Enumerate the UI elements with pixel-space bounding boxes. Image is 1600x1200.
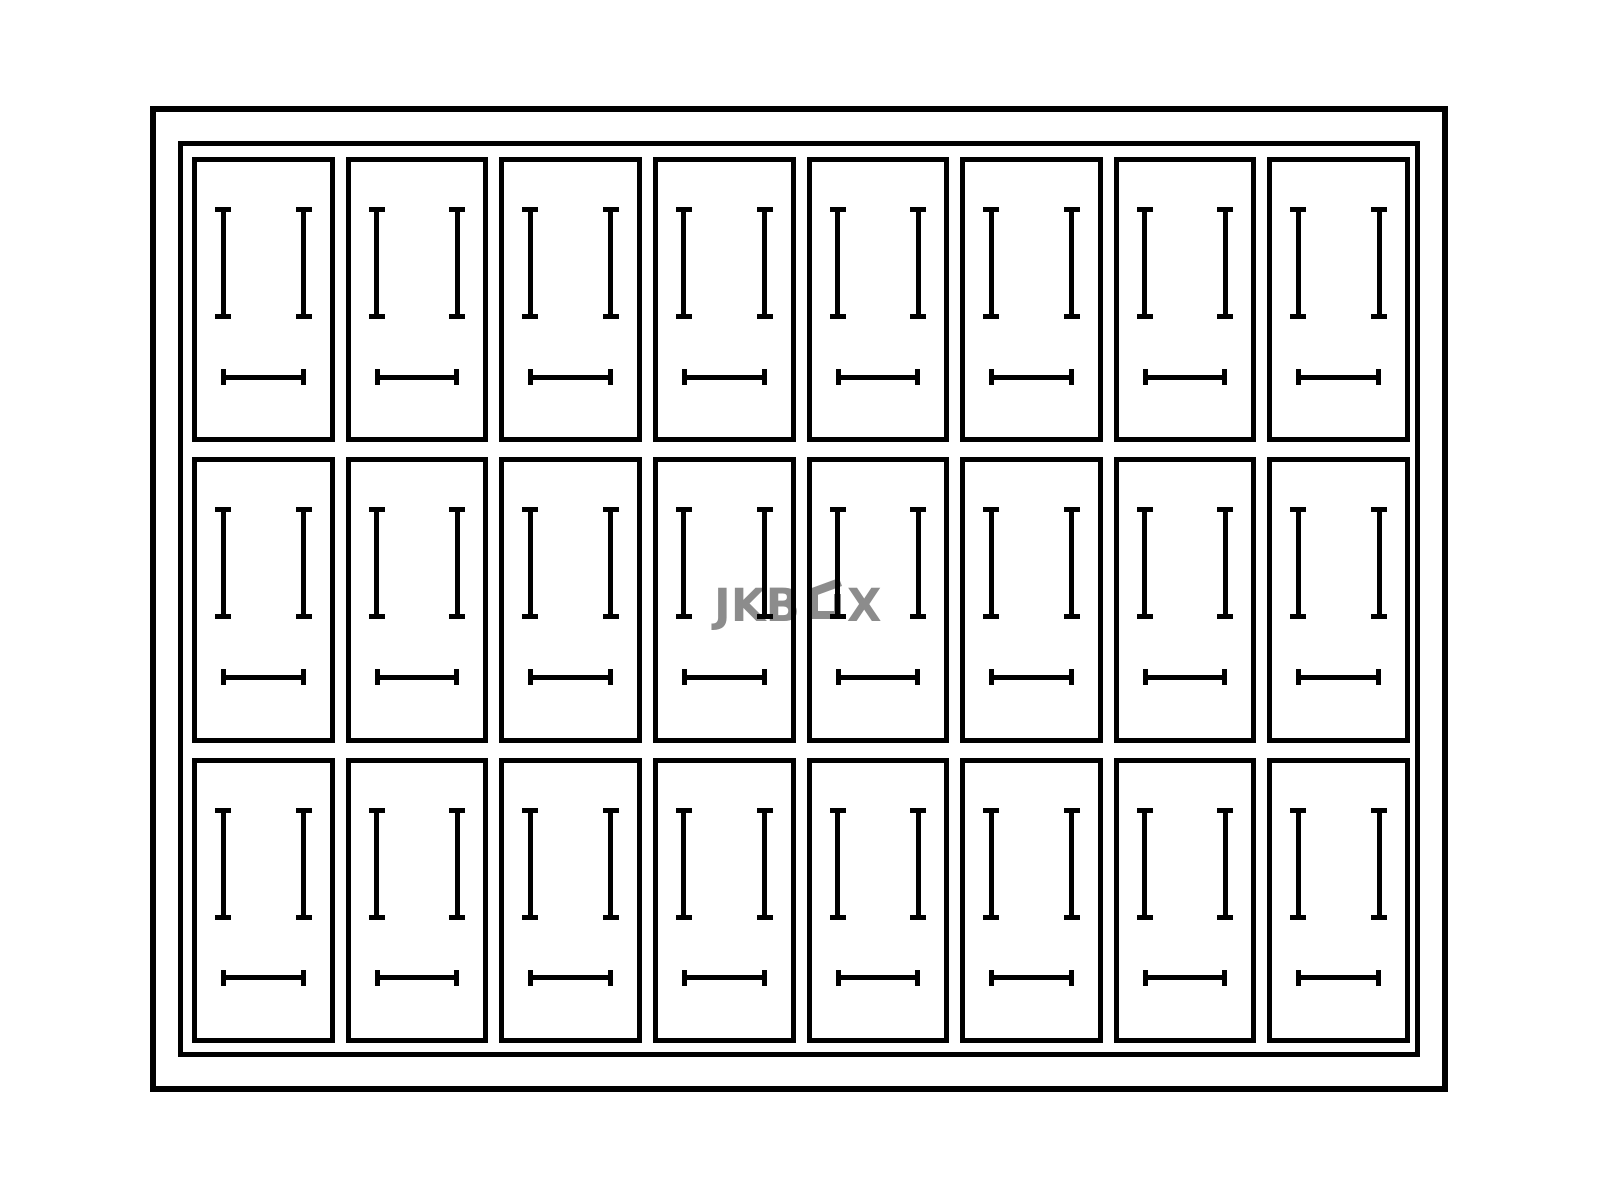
bar-slot-icon bbox=[989, 369, 1074, 385]
pin-slot-left-icon bbox=[215, 808, 231, 920]
bar-slot-icon bbox=[1143, 369, 1228, 385]
pin-slot-right-icon bbox=[603, 808, 619, 920]
compartment bbox=[807, 157, 950, 442]
bar-slot-icon bbox=[221, 970, 306, 986]
bar-slot-icon bbox=[682, 369, 767, 385]
pin-slot-right-icon bbox=[1217, 808, 1233, 920]
bar-slot-icon bbox=[989, 970, 1074, 986]
pin-slot-left-icon bbox=[369, 507, 385, 619]
compartment bbox=[499, 157, 642, 442]
pin-slot-right-icon bbox=[449, 507, 465, 619]
compartment bbox=[807, 457, 950, 742]
pin-slot-left-icon bbox=[1290, 507, 1306, 619]
pin-slot-left-icon bbox=[830, 808, 846, 920]
bar-slot-icon bbox=[1143, 970, 1228, 986]
bar-slot-icon bbox=[1143, 669, 1228, 685]
pin-slot-left-icon bbox=[1290, 808, 1306, 920]
pin-slot-left-icon bbox=[676, 507, 692, 619]
pin-slot-left-icon bbox=[1137, 207, 1153, 319]
tray-diagram: JKB X bbox=[0, 0, 1600, 1200]
compartment bbox=[960, 758, 1103, 1043]
compartment bbox=[653, 157, 796, 442]
compartment bbox=[653, 457, 796, 742]
compartment bbox=[1114, 157, 1257, 442]
pin-slot-left-icon bbox=[1137, 808, 1153, 920]
pin-slot-right-icon bbox=[296, 207, 312, 319]
bar-slot-icon bbox=[375, 369, 460, 385]
pin-slot-right-icon bbox=[449, 808, 465, 920]
pin-slot-left-icon bbox=[522, 808, 538, 920]
pin-slot-right-icon bbox=[1064, 808, 1080, 920]
pin-slot-right-icon bbox=[1371, 808, 1387, 920]
pin-slot-right-icon bbox=[910, 808, 926, 920]
pin-slot-right-icon bbox=[1371, 207, 1387, 319]
pin-slot-right-icon bbox=[757, 507, 773, 619]
compartment bbox=[653, 758, 796, 1043]
pin-slot-left-icon bbox=[1290, 207, 1306, 319]
pin-slot-left-icon bbox=[1137, 507, 1153, 619]
pin-slot-right-icon bbox=[910, 207, 926, 319]
bar-slot-icon bbox=[836, 669, 921, 685]
pin-slot-right-icon bbox=[1371, 507, 1387, 619]
pin-slot-left-icon bbox=[676, 207, 692, 319]
bar-slot-icon bbox=[221, 669, 306, 685]
bar-slot-icon bbox=[682, 669, 767, 685]
pin-slot-right-icon bbox=[296, 808, 312, 920]
bar-slot-icon bbox=[1296, 669, 1381, 685]
compartment bbox=[346, 457, 489, 742]
compartment bbox=[346, 758, 489, 1043]
pin-slot-right-icon bbox=[603, 207, 619, 319]
pin-slot-left-icon bbox=[830, 207, 846, 319]
pin-slot-right-icon bbox=[603, 507, 619, 619]
pin-slot-left-icon bbox=[522, 207, 538, 319]
pin-slot-right-icon bbox=[757, 808, 773, 920]
bar-slot-icon bbox=[836, 970, 921, 986]
bar-slot-icon bbox=[221, 369, 306, 385]
pin-slot-right-icon bbox=[910, 507, 926, 619]
compartment bbox=[499, 457, 642, 742]
pin-slot-right-icon bbox=[1064, 207, 1080, 319]
compartment bbox=[960, 157, 1103, 442]
pin-slot-left-icon bbox=[983, 207, 999, 319]
pin-slot-left-icon bbox=[983, 507, 999, 619]
bar-slot-icon bbox=[375, 669, 460, 685]
pin-slot-left-icon bbox=[676, 808, 692, 920]
compartment bbox=[1114, 457, 1257, 742]
compartment-grid bbox=[192, 157, 1410, 1043]
compartment bbox=[346, 157, 489, 442]
pin-slot-right-icon bbox=[1217, 207, 1233, 319]
bar-slot-icon bbox=[528, 970, 613, 986]
compartment bbox=[1267, 758, 1410, 1043]
bar-slot-icon bbox=[682, 970, 767, 986]
compartment bbox=[960, 457, 1103, 742]
compartment bbox=[1114, 758, 1257, 1043]
bar-slot-icon bbox=[1296, 369, 1381, 385]
compartment bbox=[499, 758, 642, 1043]
pin-slot-right-icon bbox=[1217, 507, 1233, 619]
pin-slot-right-icon bbox=[1064, 507, 1080, 619]
pin-slot-right-icon bbox=[296, 507, 312, 619]
pin-slot-left-icon bbox=[983, 808, 999, 920]
bar-slot-icon bbox=[836, 369, 921, 385]
bar-slot-icon bbox=[1296, 970, 1381, 986]
compartment bbox=[807, 758, 950, 1043]
compartment bbox=[192, 157, 335, 442]
compartment bbox=[192, 758, 335, 1043]
bar-slot-icon bbox=[528, 369, 613, 385]
bar-slot-icon bbox=[375, 970, 460, 986]
pin-slot-right-icon bbox=[449, 207, 465, 319]
pin-slot-left-icon bbox=[215, 207, 231, 319]
pin-slot-left-icon bbox=[369, 207, 385, 319]
bar-slot-icon bbox=[528, 669, 613, 685]
compartment bbox=[1267, 157, 1410, 442]
pin-slot-right-icon bbox=[757, 207, 773, 319]
pin-slot-left-icon bbox=[215, 507, 231, 619]
pin-slot-left-icon bbox=[369, 808, 385, 920]
pin-slot-left-icon bbox=[830, 507, 846, 619]
pin-slot-left-icon bbox=[522, 507, 538, 619]
bar-slot-icon bbox=[989, 669, 1074, 685]
compartment bbox=[1267, 457, 1410, 742]
compartment bbox=[192, 457, 335, 742]
